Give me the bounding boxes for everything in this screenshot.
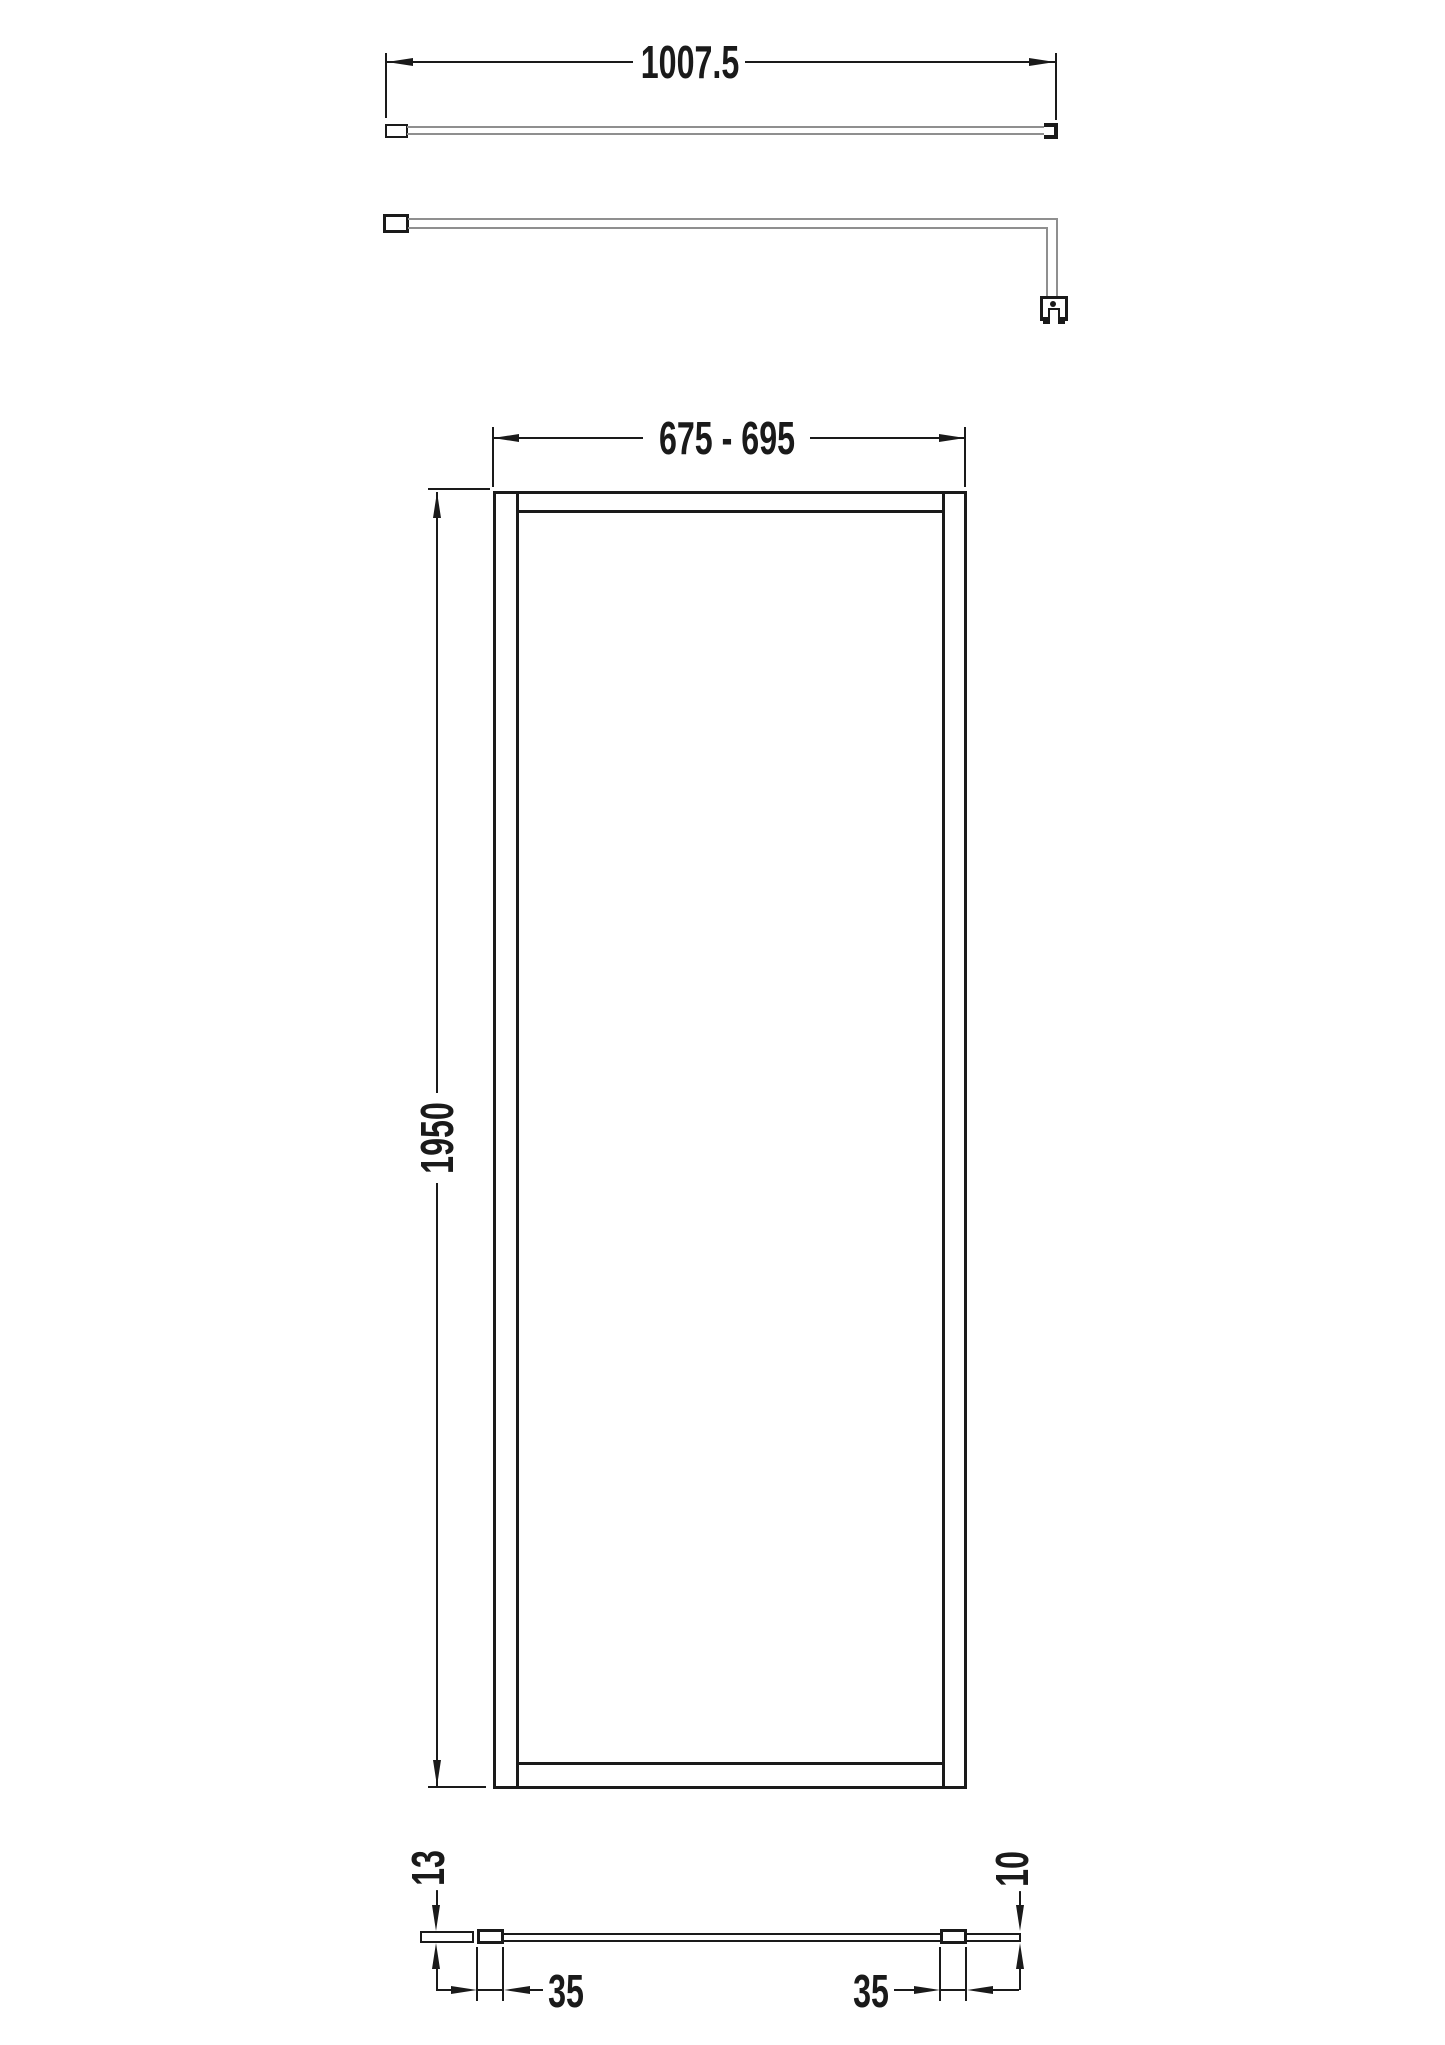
- arm-dim-line-left: [387, 61, 633, 63]
- right35-extension-a: [939, 1947, 941, 2001]
- left35-extension-a: [476, 1947, 478, 2001]
- arm-drop-tube-outer-line: [1056, 218, 1058, 298]
- plan-glass-top-line-right: [967, 1933, 1021, 1935]
- arm-tube-bottom-line: [407, 133, 1045, 135]
- glass-thickness-label: 10: [989, 1847, 1035, 1891]
- left35-dim-tail-inner: [530, 1989, 543, 1991]
- plan-wall-profile: [420, 1931, 474, 1943]
- glass-clamp-foot-right: [1058, 317, 1065, 324]
- left-clamp-width-label: 35: [544, 1968, 588, 2014]
- panel-left-post-inner-line: [516, 491, 519, 1789]
- arm-drop-tube-inner-line: [1046, 227, 1048, 298]
- thickness13-line-bottom: [436, 1969, 438, 1990]
- left35-arrow-left: [504, 1986, 530, 1994]
- glass-clamp-foot-left: [1043, 317, 1050, 324]
- height-dim-extension-top: [428, 488, 490, 490]
- panel-top-rail-inner-line: [519, 510, 942, 513]
- arm-tube-top-line: [407, 126, 1045, 128]
- height-dim-line-top: [436, 492, 438, 1093]
- left35-dim-line-mid: [478, 1989, 502, 1991]
- thickness13-arrow-up: [432, 1943, 440, 1969]
- right35-arrow-right: [914, 1986, 940, 1994]
- arm-dim-arrow-left: [387, 58, 413, 66]
- plan-left-clamp-block: [477, 1929, 504, 1944]
- arm-side-tube-bottom-line: [408, 227, 1048, 229]
- panel-height-label: 1950: [414, 1098, 460, 1178]
- arm-length-label: 1007.5: [637, 39, 744, 85]
- arm-wall-bracket: [385, 124, 408, 138]
- height-dim-extension-bottom: [428, 1786, 486, 1788]
- plan-glass-end-line: [1019, 1933, 1021, 1942]
- right-clamp-width-label: 35: [849, 1968, 893, 2014]
- left35-arrow-right: [451, 1986, 477, 1994]
- arm-side-tube-top-line: [408, 218, 1058, 220]
- height-dim-arrow-top: [433, 492, 441, 518]
- arm-dim-extension-right: [1055, 53, 1057, 120]
- plan-glass-bottom-line-right: [967, 1940, 1021, 1942]
- right35-dim-tail-inner: [894, 1989, 915, 1991]
- panel-width-label: 675 - 695: [655, 415, 799, 461]
- arm-dim-arrow-right: [1029, 58, 1055, 66]
- thickness13-arrow-down: [432, 1905, 440, 1931]
- left35-dim-tail-outer: [436, 1989, 452, 1991]
- arm-dim-line-right: [745, 61, 1055, 63]
- right35-arrow-left: [967, 1986, 993, 1994]
- height-dim-arrow-bottom: [433, 1760, 441, 1786]
- thickness10-arrow-up: [1016, 1943, 1024, 1969]
- panel-bottom-rail-inner-line: [519, 1762, 942, 1765]
- panel-right-post-inner-line: [942, 491, 945, 1789]
- plan-right-clamp-block: [940, 1929, 967, 1944]
- right35-dim-tail-outer: [993, 1989, 1019, 1991]
- thickness10-arrow-down: [1016, 1905, 1024, 1931]
- plan-glass-top-line-mid: [504, 1933, 940, 1935]
- width-dim-arrow-left: [493, 434, 519, 442]
- panel-outer-frame: [493, 491, 967, 1789]
- glass-clamp-screw: [1050, 301, 1056, 307]
- arm-side-wall-bracket: [383, 214, 409, 233]
- right35-dim-line-mid: [941, 1989, 965, 1991]
- wall-profile-thickness-label: 13: [405, 1846, 451, 1890]
- plan-glass-bottom-line-mid: [504, 1940, 940, 1942]
- height-dim-line-bottom: [436, 1183, 438, 1786]
- thickness10-line-bottom: [1019, 1969, 1021, 1990]
- arm-end-fitting-slot: [1044, 127, 1054, 135]
- technical-drawing-canvas: 1007.5 675 - 695: [0, 0, 1445, 2045]
- width-dim-arrow-right: [939, 434, 965, 442]
